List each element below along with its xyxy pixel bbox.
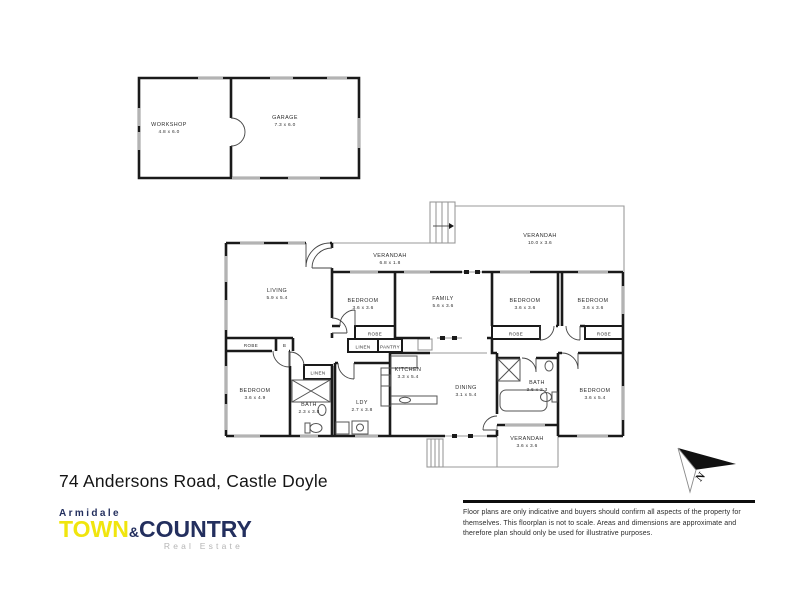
property-address: 74 Andersons Road, Castle Doyle	[59, 471, 328, 492]
room-dims-verandah-bottom: 3.6 x 3.6	[516, 443, 537, 449]
room-label-bedroom5: BEDROOM	[579, 388, 610, 394]
closet-label-robe1: ROBE	[368, 332, 382, 337]
room-dims-ldy: 2.7 x 3.8	[351, 407, 372, 413]
room-label-bedroom3: BEDROOM	[577, 298, 608, 304]
room-label-bath2: BATH	[529, 380, 545, 386]
room-dims-bedroom3: 3.6 x 3.6	[582, 305, 603, 311]
steps-top	[430, 202, 455, 243]
room-label-verandah-top: VERANDAH	[523, 233, 557, 239]
room-label-living: LIVING	[267, 288, 287, 294]
room-label-bath1: BATH	[301, 402, 317, 408]
room-label-family: FAMILY	[432, 296, 453, 302]
closet-label-b: B	[283, 343, 286, 348]
room-label-bedroom2: BEDROOM	[509, 298, 540, 304]
steps-bottom	[427, 439, 443, 467]
closet-label-robe-hall: ROBE	[244, 343, 258, 348]
room-dims-workshop: 4.8 x 6.0	[158, 129, 179, 135]
closet-label-linen-hall: LINEN	[355, 345, 370, 350]
room-dims-garage: 7.3 x 6.0	[274, 122, 295, 128]
room-label-ldy: LDY	[356, 400, 368, 406]
room-dims-bath2: 3.6 x 2.3	[526, 387, 547, 393]
room-dims-bedroom2: 3.6 x 3.6	[514, 305, 535, 311]
doors	[231, 118, 580, 430]
room-label-dining: DINING	[455, 385, 477, 391]
room-label-bedroom4: BEDROOM	[239, 388, 270, 394]
room-label-bedroom1: BEDROOM	[347, 298, 378, 304]
room-dims-bedroom4: 3.6 x 4.9	[244, 395, 265, 401]
room-label-garage: GARAGE	[272, 115, 298, 121]
logo-country-text: COUNTRY	[139, 516, 252, 542]
room-dims-family: 5.6 x 3.6	[432, 303, 453, 309]
north-compass-icon: N	[678, 448, 736, 492]
room-dims-bedroom1: 3.6 x 3.6	[352, 305, 373, 311]
room-dims-verandah-left: 6.8 x 1.8	[379, 260, 400, 266]
floorplan-page: WORKSHOP 4.8 x 6.0 GARAGE 7.3 x 6.0 LIVI…	[0, 0, 800, 600]
compass-north-label: N	[694, 470, 708, 484]
logo-town-text: TOWN	[59, 516, 129, 542]
room-dims-living: 5.9 x 5.4	[266, 295, 287, 301]
logo-main-text: TOWN&COUNTRY	[59, 518, 245, 541]
room-dims-bath1: 2.3 x 3.8	[298, 409, 319, 415]
closet-label-robe3: ROBE	[597, 332, 611, 337]
closet-label-pantry: PANTRY	[380, 345, 400, 350]
logo-tagline: Real Estate	[59, 541, 243, 551]
room-label-verandah-bottom: VERANDAH	[510, 436, 544, 442]
room-dims-kitchen: 3.3 x 5.4	[397, 374, 418, 380]
disclaimer-divider	[463, 500, 755, 503]
room-label-workshop: WORKSHOP	[151, 122, 187, 128]
room-label-kitchen: KITCHEN	[395, 367, 422, 373]
logo-ampersand: &	[129, 524, 139, 540]
closet-label-robe2: ROBE	[509, 332, 523, 337]
disclaimer-text: Floor plans are only indicative and buye…	[463, 508, 755, 538]
room-dims-dining: 3.1 x 5.4	[455, 392, 476, 398]
disclaimer-block: Floor plans are only indicative and buye…	[463, 500, 755, 539]
closet-label-linen-bath: LINEN	[310, 371, 325, 376]
agency-logo: Armidale TOWN&COUNTRY Real Estate	[59, 508, 245, 551]
room-dims-verandah-top: 10.0 x 3.6	[528, 240, 552, 246]
room-label-verandah-left: VERANDAH	[373, 253, 407, 259]
room-dims-bedroom5: 3.6 x 5.4	[584, 395, 605, 401]
